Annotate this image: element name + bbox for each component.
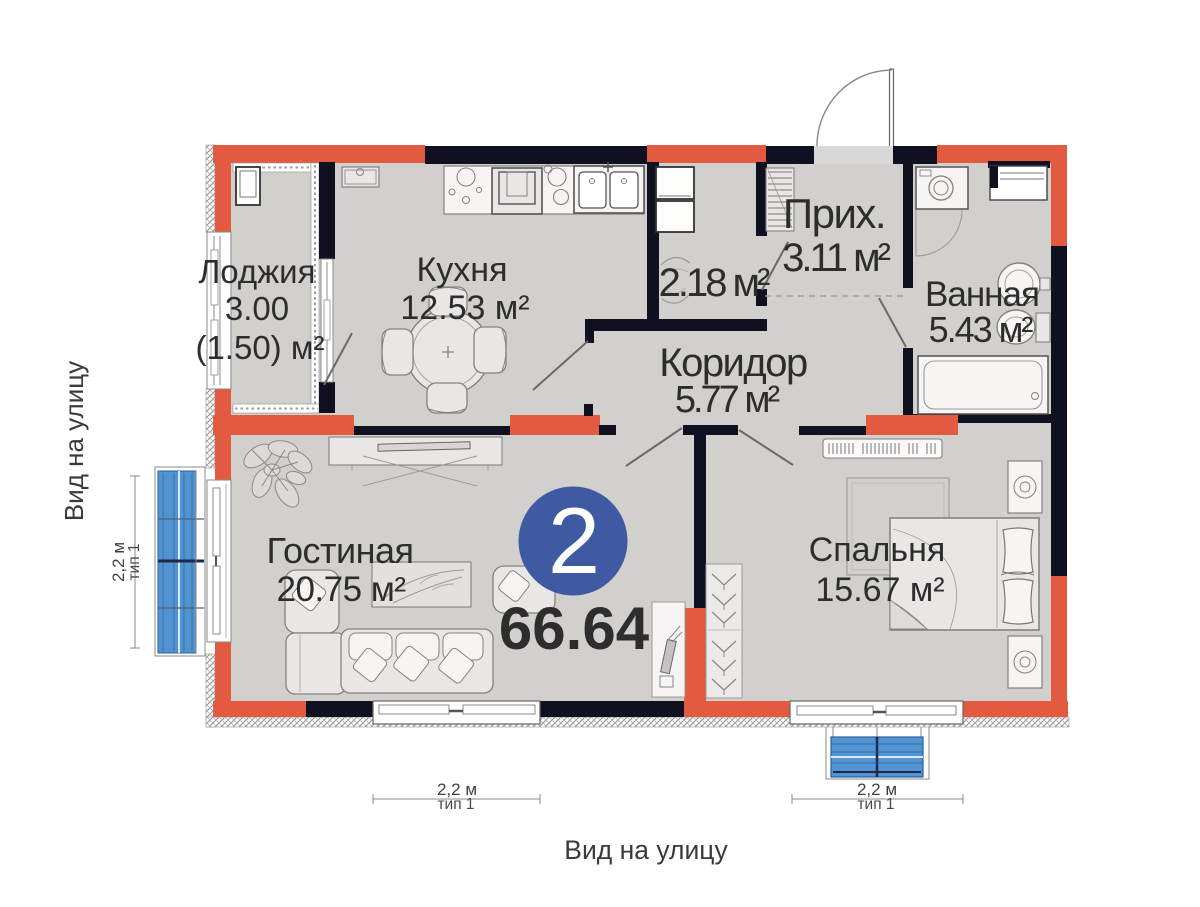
- svg-text:тип 1: тип 1: [857, 796, 894, 813]
- svg-text:Вид на улицу: Вид на улицу: [564, 835, 728, 865]
- svg-text:тип 1: тип 1: [126, 543, 143, 580]
- svg-text:(1.50) м²: (1.50) м²: [195, 329, 324, 366]
- svg-text:2.18 м²: 2.18 м²: [659, 261, 770, 305]
- svg-text:2: 2: [548, 488, 600, 593]
- svg-text:20.75 м²: 20.75 м²: [276, 570, 405, 609]
- svg-text:Спальня: Спальня: [809, 531, 946, 569]
- svg-text:66.64: 66.64: [499, 595, 650, 662]
- svg-text:15.67 м²: 15.67 м²: [815, 571, 944, 609]
- svg-text:Вид на улицу: Вид на улицу: [59, 361, 89, 521]
- svg-text:Прих.: Прих.: [783, 190, 885, 237]
- svg-text:3.00: 3.00: [225, 290, 289, 327]
- svg-text:3.11 м²: 3.11 м²: [782, 236, 890, 280]
- svg-text:12.53 м²: 12.53 м²: [400, 289, 529, 327]
- svg-text:Кухня: Кухня: [417, 251, 508, 289]
- svg-text:5.77 м²: 5.77 м²: [675, 379, 780, 421]
- svg-text:тип 1: тип 1: [437, 796, 474, 813]
- svg-text:Лоджия: Лоджия: [199, 253, 316, 290]
- svg-text:Гостиная: Гостиная: [266, 530, 413, 571]
- svg-text:5.43 м²: 5.43 м²: [929, 309, 1034, 350]
